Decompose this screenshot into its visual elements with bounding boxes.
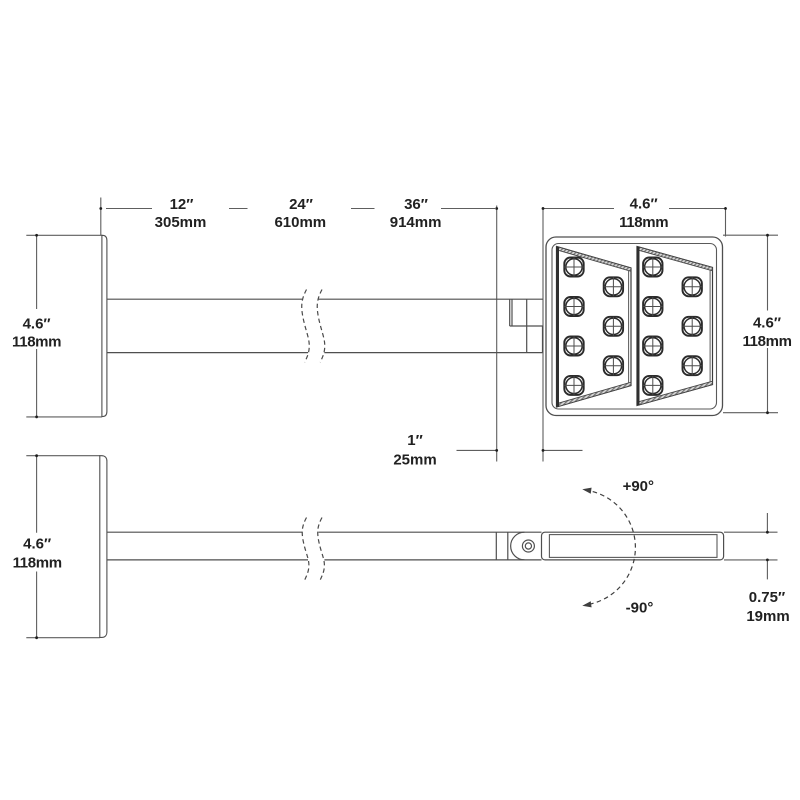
svg-text:4.6″: 4.6″ bbox=[630, 196, 658, 213]
svg-text:118mm: 118mm bbox=[619, 214, 668, 231]
svg-text:+90°: +90° bbox=[623, 478, 654, 495]
svg-text:610mm: 610mm bbox=[274, 214, 326, 231]
svg-text:-90°: -90° bbox=[626, 600, 654, 617]
svg-text:4.6″: 4.6″ bbox=[23, 315, 51, 332]
svg-text:19mm: 19mm bbox=[746, 608, 789, 625]
svg-text:1″: 1″ bbox=[407, 432, 423, 449]
svg-text:118mm: 118mm bbox=[742, 333, 791, 350]
svg-text:12″: 12″ bbox=[170, 196, 194, 213]
svg-text:118mm: 118mm bbox=[12, 334, 61, 351]
svg-text:4.6″: 4.6″ bbox=[753, 315, 781, 332]
svg-text:36″: 36″ bbox=[404, 196, 428, 213]
svg-text:25mm: 25mm bbox=[393, 451, 436, 468]
svg-text:4.6″: 4.6″ bbox=[23, 536, 51, 553]
svg-text:24″: 24″ bbox=[289, 196, 313, 213]
svg-text:305mm: 305mm bbox=[155, 214, 207, 231]
svg-text:0.75″: 0.75″ bbox=[749, 589, 785, 606]
svg-text:118mm: 118mm bbox=[13, 554, 62, 571]
svg-text:914mm: 914mm bbox=[390, 214, 442, 231]
